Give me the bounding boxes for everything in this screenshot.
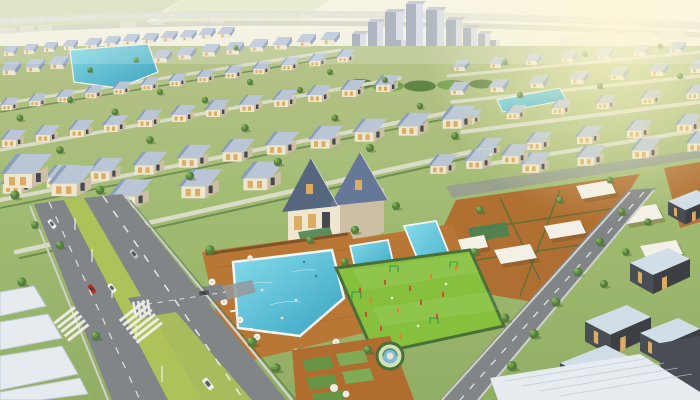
sun-glow [0, 0, 700, 400]
aerial-render-image [0, 0, 700, 400]
aerial-neighborhood-render [0, 0, 700, 400]
